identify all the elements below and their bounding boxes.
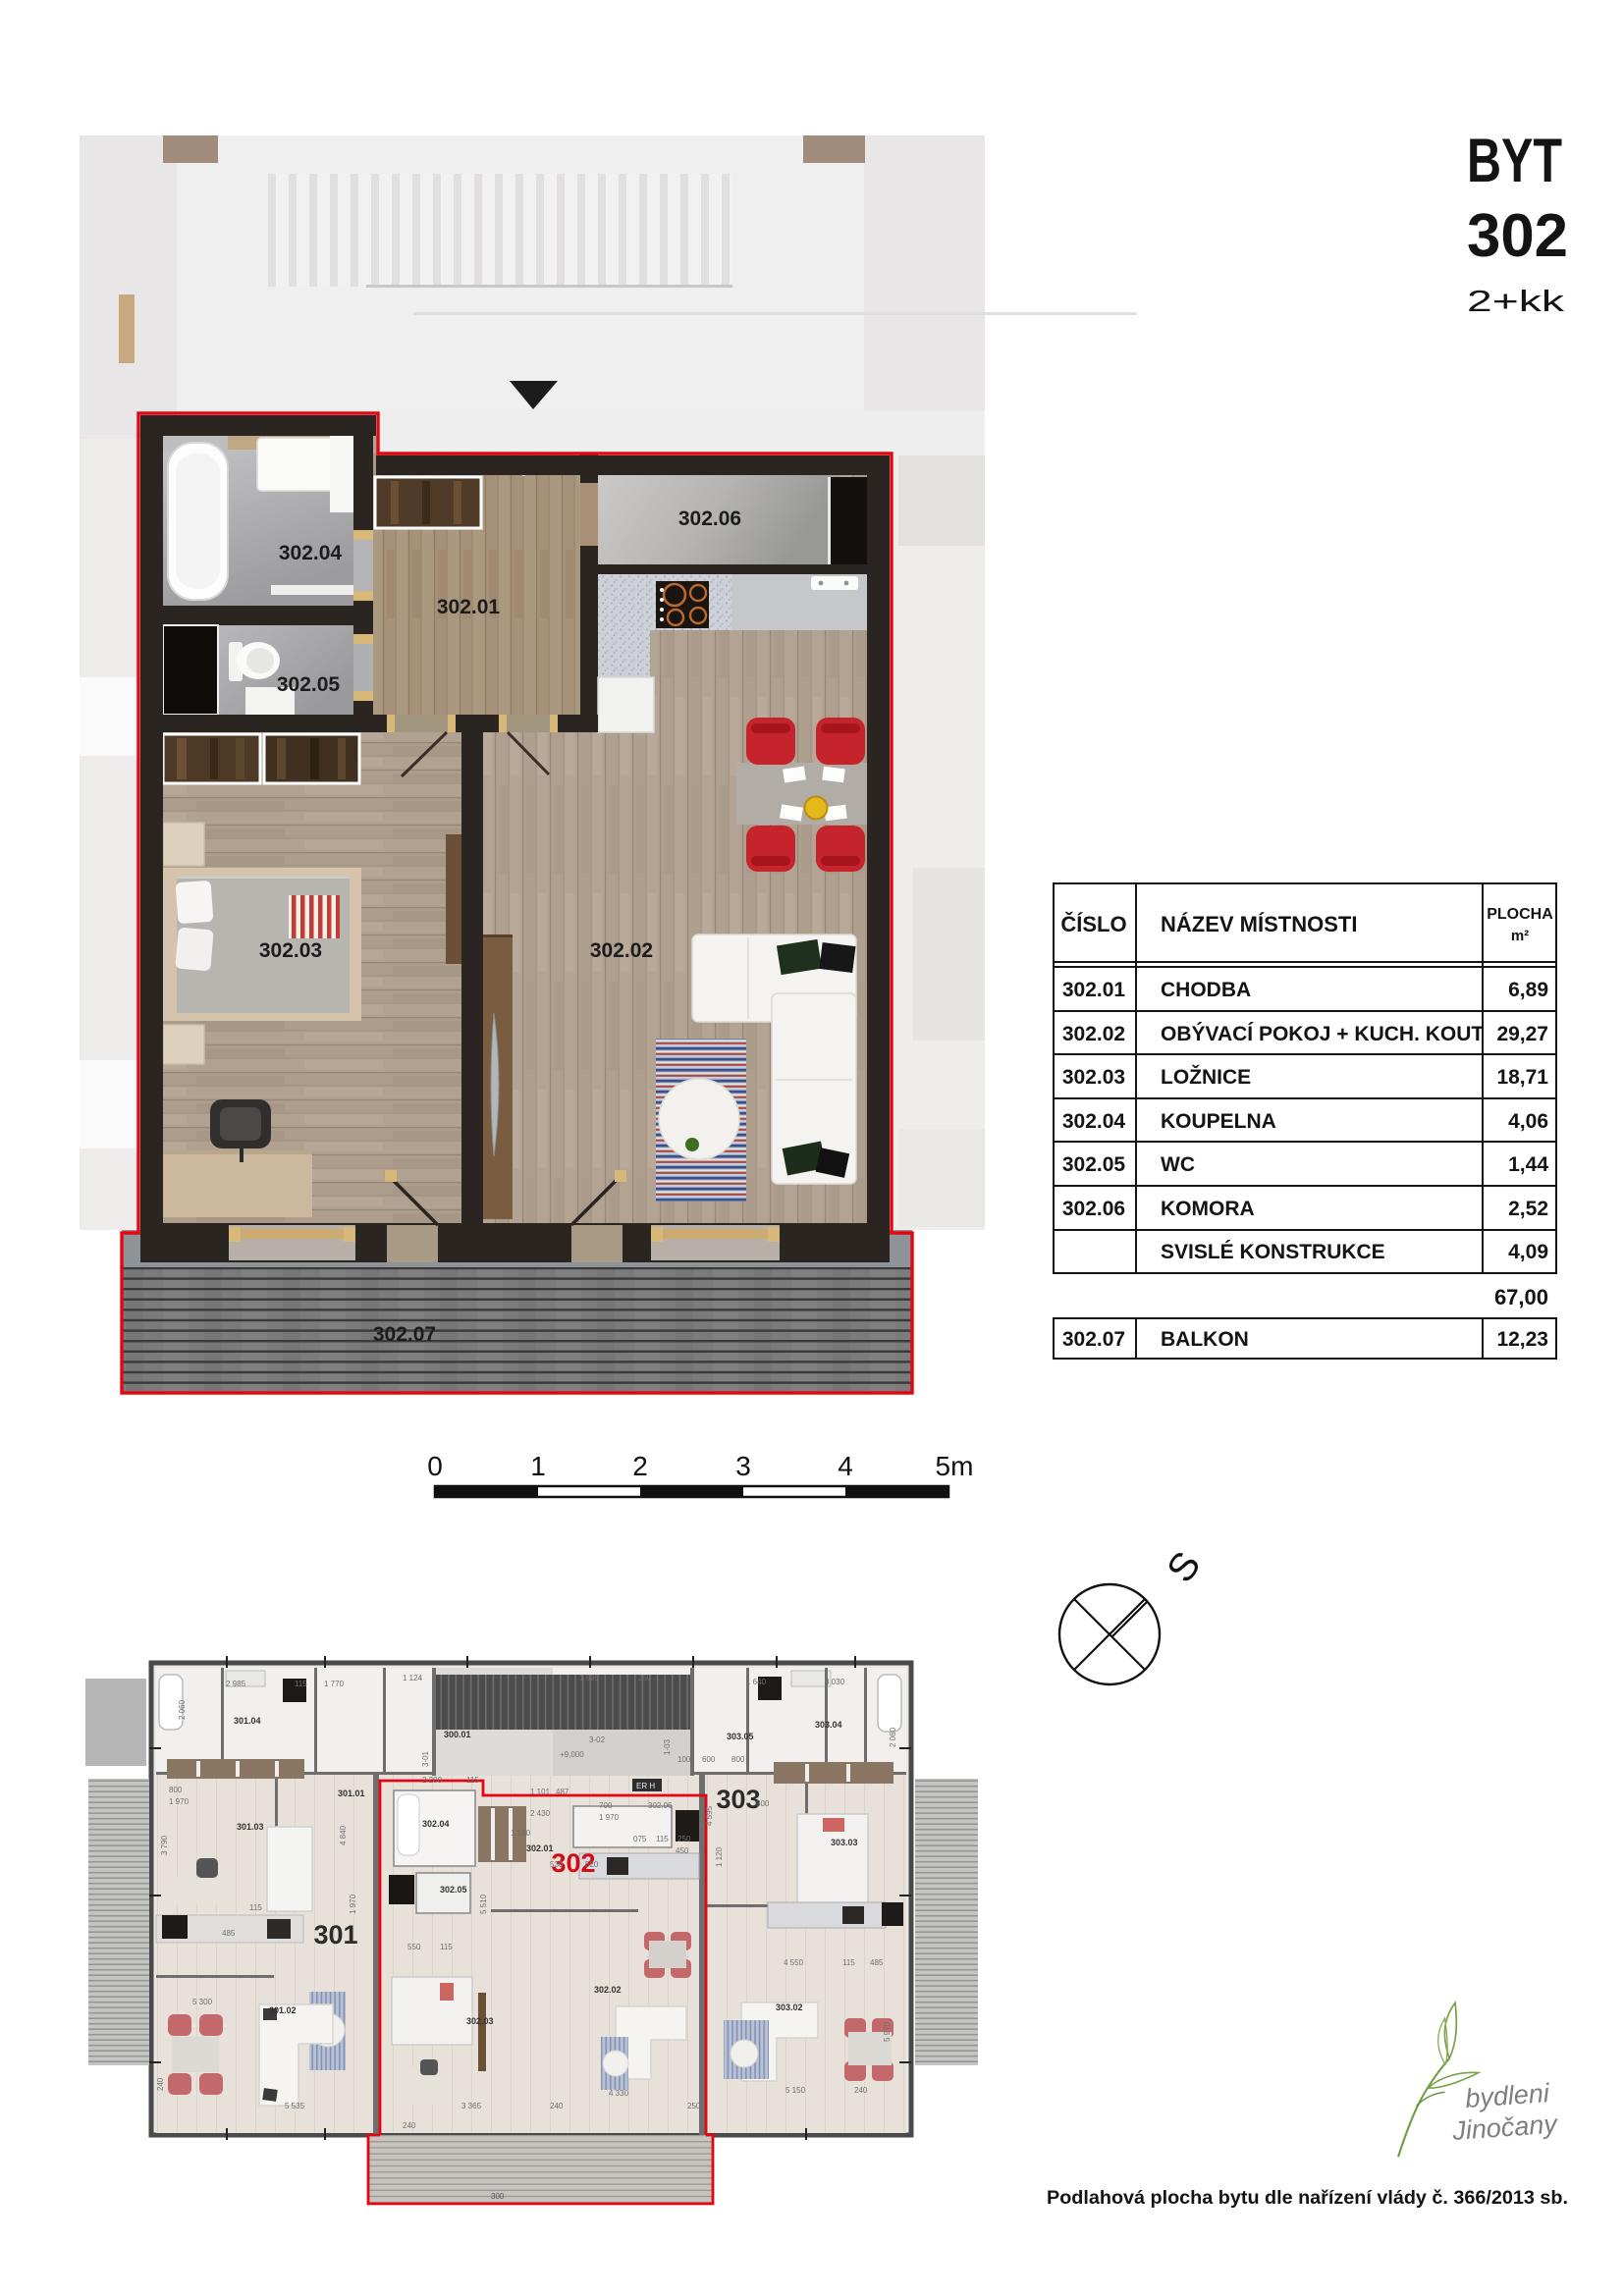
svg-text:100: 100 <box>677 1755 691 1764</box>
svg-text:302.02: 302.02 <box>1062 1023 1125 1045</box>
svg-text:2: 2 <box>632 1451 648 1481</box>
svg-text:5 300: 5 300 <box>192 1998 213 2006</box>
svg-text:250: 250 <box>638 1674 652 1682</box>
svg-text:302.04: 302.04 <box>1062 1110 1126 1133</box>
svg-text:302.01: 302.01 <box>1062 979 1126 1001</box>
svg-text:240: 240 <box>403 2121 416 2130</box>
svg-text:303.03: 303.03 <box>831 1838 858 1847</box>
svg-text:1: 1 <box>530 1451 546 1481</box>
svg-text:2 200: 2 200 <box>422 1776 443 1785</box>
svg-text:4,09: 4,09 <box>1508 1241 1548 1263</box>
svg-text:302.05: 302.05 <box>277 673 341 696</box>
svg-text:CHODBA: CHODBA <box>1161 979 1251 1001</box>
svg-text:WC: WC <box>1161 1153 1195 1176</box>
svg-text:115: 115 <box>842 1958 855 1967</box>
svg-text:1 124: 1 124 <box>403 1674 423 1682</box>
svg-text:302.06: 302.06 <box>1062 1198 1125 1220</box>
svg-text:300.01: 300.01 <box>444 1730 471 1739</box>
svg-text:5 970: 5 970 <box>883 2021 892 2042</box>
svg-text:485: 485 <box>870 1958 884 1967</box>
svg-text:302.01: 302.01 <box>437 596 501 618</box>
svg-text:ER H: ER H <box>636 1782 655 1790</box>
svg-text:5m: 5m <box>936 1451 974 1481</box>
svg-text:4 330: 4 330 <box>609 2089 629 2098</box>
svg-text:6,89: 6,89 <box>1508 979 1548 1001</box>
svg-text:1 160: 1 160 <box>511 1829 531 1838</box>
svg-text:302.05: 302.05 <box>1062 1153 1126 1176</box>
svg-text:240: 240 <box>550 2102 564 2110</box>
svg-text:302.02: 302.02 <box>594 1985 622 1995</box>
svg-text:303.02: 303.02 <box>776 2002 803 2012</box>
svg-text:5 510: 5 510 <box>479 1894 488 1914</box>
svg-text:1 970: 1 970 <box>169 1797 189 1806</box>
svg-text:600: 600 <box>702 1755 716 1764</box>
svg-text:29,27: 29,27 <box>1496 1023 1548 1045</box>
svg-text:250: 250 <box>677 1835 691 1843</box>
svg-text:1 595: 1 595 <box>579 1674 600 1682</box>
svg-text:1 770: 1 770 <box>324 1680 345 1688</box>
svg-text:1 640: 1 640 <box>746 1678 767 1686</box>
svg-text:302.06: 302.06 <box>648 1801 673 1810</box>
svg-text:2 060: 2 060 <box>889 1727 897 1747</box>
svg-text:4 840: 4 840 <box>339 1825 348 1845</box>
svg-text:800: 800 <box>756 1799 770 1808</box>
svg-text:0: 0 <box>427 1451 443 1481</box>
svg-text:302.06: 302.06 <box>678 507 741 530</box>
svg-text:OBÝVACÍ POKOJ + KUCH. KOUT: OBÝVACÍ POKOJ + KUCH. KOUT <box>1161 1022 1484 1045</box>
svg-text:KOUPELNA: KOUPELNA <box>1161 1110 1276 1133</box>
svg-text:3-01: 3-01 <box>421 1750 430 1767</box>
svg-text:ČÍSLO: ČÍSLO <box>1060 912 1126 936</box>
svg-text:550: 550 <box>407 1943 421 1951</box>
svg-text:115: 115 <box>440 1943 453 1951</box>
svg-text:800: 800 <box>169 1786 183 1794</box>
svg-text:4 595: 4 595 <box>705 1805 714 1826</box>
svg-text:302.05: 302.05 <box>440 1885 467 1895</box>
svg-text:1 120: 1 120 <box>715 1846 724 1867</box>
svg-text:303.05: 303.05 <box>727 1732 754 1741</box>
svg-text:PLOCHA: PLOCHA <box>1487 906 1553 923</box>
svg-text:530: 530 <box>550 1860 564 1869</box>
svg-text:301.03: 301.03 <box>237 1822 264 1832</box>
svg-text:302.04: 302.04 <box>422 1819 450 1829</box>
svg-text:302: 302 <box>1467 202 1568 270</box>
svg-text:115: 115 <box>466 1776 479 1785</box>
svg-text:1 101: 1 101 <box>530 1788 551 1796</box>
svg-text:301.02: 301.02 <box>269 2005 297 2015</box>
svg-text:301.01: 301.01 <box>338 1789 365 1798</box>
svg-text:18,71: 18,71 <box>1496 1066 1548 1089</box>
svg-text:+9,000: +9,000 <box>560 1750 584 1759</box>
svg-text:700: 700 <box>599 1801 613 1810</box>
svg-text:SVISLÉ KONSTRUKCE: SVISLÉ KONSTRUKCE <box>1161 1241 1385 1263</box>
svg-text:5 535: 5 535 <box>285 2102 305 2110</box>
svg-text:450: 450 <box>676 1846 689 1855</box>
svg-text:4: 4 <box>838 1451 853 1481</box>
svg-text:302.03: 302.03 <box>259 939 322 962</box>
svg-text:115: 115 <box>295 1680 307 1688</box>
svg-text:5 150: 5 150 <box>785 2086 806 2095</box>
svg-text:1-03: 1-03 <box>663 1738 672 1755</box>
svg-text:520: 520 <box>585 1860 599 1869</box>
svg-text:67,00: 67,00 <box>1494 1285 1548 1309</box>
svg-text:240: 240 <box>854 2086 868 2095</box>
svg-text:302.07: 302.07 <box>373 1323 436 1346</box>
svg-text:302.07: 302.07 <box>1062 1328 1125 1351</box>
svg-text:2 060: 2 060 <box>178 1699 187 1720</box>
svg-text:485: 485 <box>222 1929 236 1938</box>
svg-text:NÁZEV MÍSTNOSTI: NÁZEV MÍSTNOSTI <box>1161 912 1357 936</box>
svg-text:BALKON: BALKON <box>1161 1328 1249 1351</box>
svg-text:2 985: 2 985 <box>226 1680 246 1688</box>
svg-text:KOMORA: KOMORA <box>1161 1198 1255 1220</box>
svg-text:12,23: 12,23 <box>1496 1328 1548 1351</box>
svg-text:302.02: 302.02 <box>590 939 653 962</box>
svg-text:BYT: BYT <box>1467 127 1562 195</box>
svg-text:2 430: 2 430 <box>530 1809 551 1818</box>
svg-text:2+kk: 2+kk <box>1467 284 1565 318</box>
svg-text:301.04: 301.04 <box>234 1716 261 1726</box>
svg-text:115: 115 <box>249 1903 262 1912</box>
svg-text:115: 115 <box>656 1835 669 1843</box>
svg-text:250: 250 <box>687 2102 701 2110</box>
svg-text:LOŽNICE: LOŽNICE <box>1161 1065 1251 1089</box>
svg-text:3 790: 3 790 <box>160 1835 169 1855</box>
svg-text:3: 3 <box>735 1451 751 1481</box>
svg-text:800: 800 <box>731 1755 745 1764</box>
svg-text:302.01: 302.01 <box>526 1843 554 1853</box>
svg-text:1 970: 1 970 <box>599 1813 620 1822</box>
svg-text:302.04: 302.04 <box>279 542 343 564</box>
svg-text:4,06: 4,06 <box>1508 1110 1548 1133</box>
svg-text:302.03: 302.03 <box>466 2016 494 2026</box>
svg-text:301: 301 <box>313 1920 357 1949</box>
svg-text:487: 487 <box>556 1788 569 1796</box>
svg-text:Podlahová plocha bytu dle naří: Podlahová plocha bytu dle nařízení vlády… <box>1047 2187 1568 2209</box>
svg-text:3-02: 3-02 <box>589 1735 606 1744</box>
svg-text:m²: m² <box>1511 928 1529 944</box>
svg-text:300: 300 <box>491 2192 505 2201</box>
svg-text:1 970: 1 970 <box>349 1894 357 1914</box>
svg-text:303: 303 <box>716 1785 760 1814</box>
svg-text:1,44: 1,44 <box>1508 1153 1548 1176</box>
svg-text:240: 240 <box>156 2077 165 2091</box>
svg-text:303.04: 303.04 <box>815 1720 842 1730</box>
svg-text:2,52: 2,52 <box>1508 1198 1548 1220</box>
svg-text:4 550: 4 550 <box>784 1958 804 1967</box>
svg-text:302.03: 302.03 <box>1062 1066 1125 1089</box>
svg-text:075: 075 <box>633 1835 647 1843</box>
svg-text:3 030: 3 030 <box>825 1678 845 1686</box>
svg-text:3 365: 3 365 <box>461 2102 482 2110</box>
svg-text:bydleni: bydleni <box>1464 2078 1550 2113</box>
